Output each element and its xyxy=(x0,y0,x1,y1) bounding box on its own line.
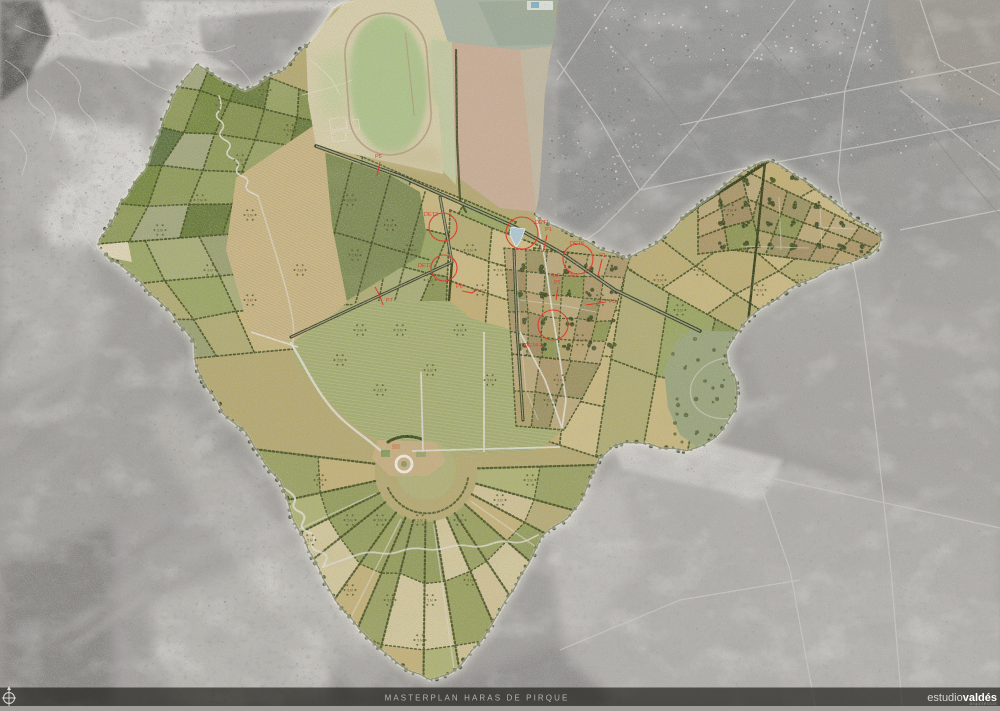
svg-text:MASTERPLAN HARAS DE PIRQUE: MASTERPLAN HARAS DE PIRQUE xyxy=(385,694,570,703)
svg-text:arquitectos: arquitectos xyxy=(969,701,997,706)
